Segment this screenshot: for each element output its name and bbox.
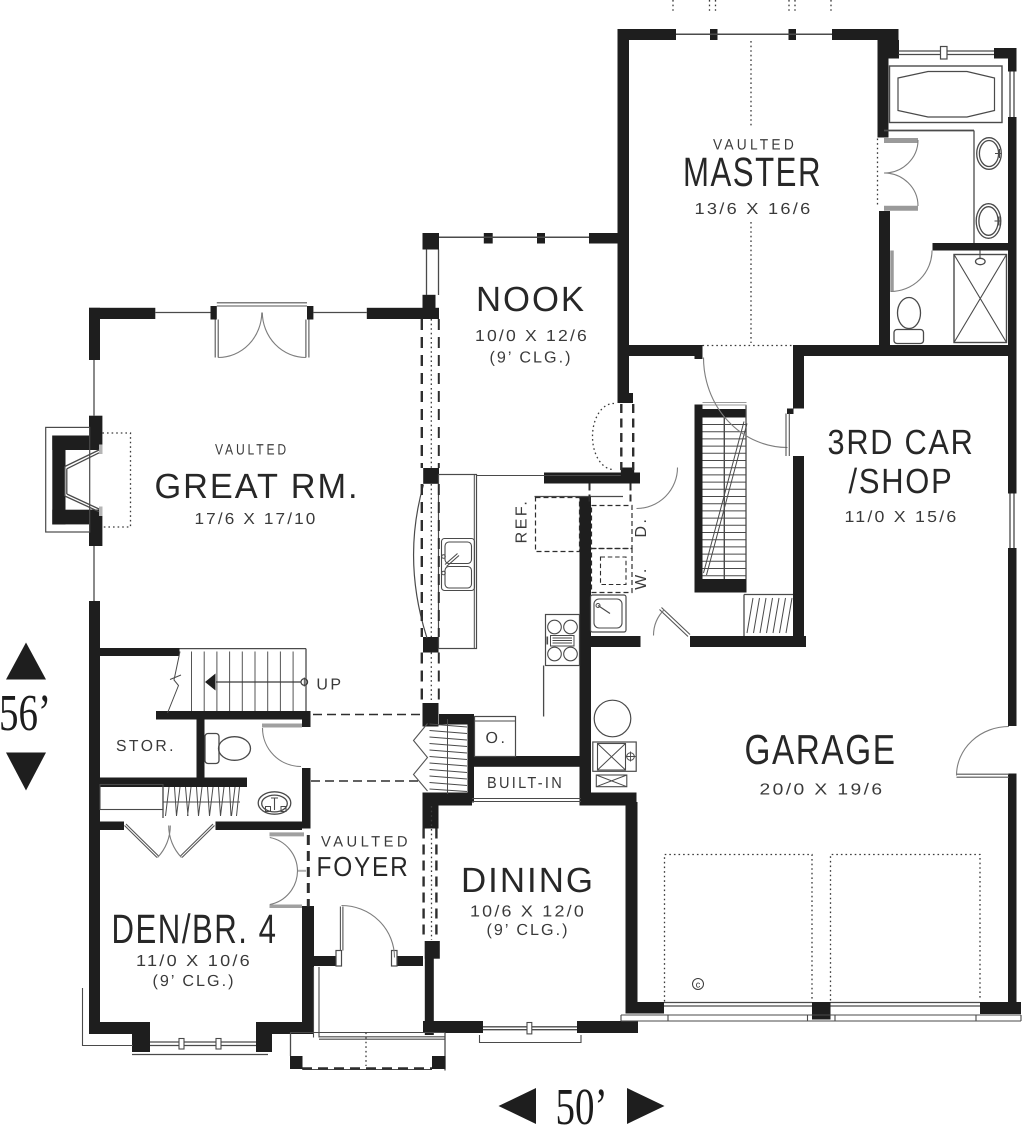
svg-text:10/6 X 12/0: 10/6 X 12/0 (470, 904, 586, 921)
svg-text:DEN/BR. 4: DEN/BR. 4 (112, 906, 278, 952)
svg-text:11/0 X 15/6: 11/0 X 15/6 (845, 509, 959, 526)
svg-text:W.: W. (633, 566, 650, 590)
svg-text:VAULTED: VAULTED (321, 834, 411, 851)
svg-text:GREAT RM.: GREAT RM. (155, 467, 360, 506)
svg-text:DINING: DINING (461, 861, 595, 900)
svg-text:REF.: REF. (514, 499, 531, 544)
svg-text:NOOK: NOOK (476, 280, 586, 319)
svg-text:56’: 56’ (0, 685, 51, 742)
svg-text:D.: D. (633, 517, 650, 538)
svg-text:c: c (696, 980, 701, 990)
svg-text:BUILT-IN: BUILT-IN (487, 775, 564, 792)
svg-text:(9’ CLG.): (9’ CLG.) (490, 350, 573, 367)
svg-text:GARAGE: GARAGE (745, 726, 897, 773)
svg-text:FOYER: FOYER (317, 851, 410, 882)
svg-text:50’: 50’ (556, 1079, 608, 1125)
svg-text:11/0 X 10/6: 11/0 X 10/6 (136, 953, 252, 970)
svg-text:10/0 X 12/6: 10/0 X 12/6 (475, 328, 589, 345)
svg-text:UP: UP (316, 677, 343, 694)
svg-text:(9’ CLG.): (9’ CLG.) (487, 922, 570, 939)
svg-text:VAULTED: VAULTED (215, 442, 289, 459)
svg-text:(9’ CLG.): (9’ CLG.) (153, 973, 236, 990)
svg-text:17/6 X 17/10: 17/6 X 17/10 (195, 511, 318, 528)
svg-text:/SHOP: /SHOP (849, 462, 954, 501)
svg-text:20/0 X 19/6: 20/0 X 19/6 (760, 782, 885, 799)
svg-text:O.: O. (486, 730, 508, 747)
svg-text:3RD CAR: 3RD CAR (828, 423, 975, 462)
svg-text:MASTER: MASTER (683, 149, 822, 195)
svg-text:13/6 X 16/6: 13/6 X 16/6 (695, 201, 813, 218)
svg-text:STOR.: STOR. (116, 738, 176, 755)
